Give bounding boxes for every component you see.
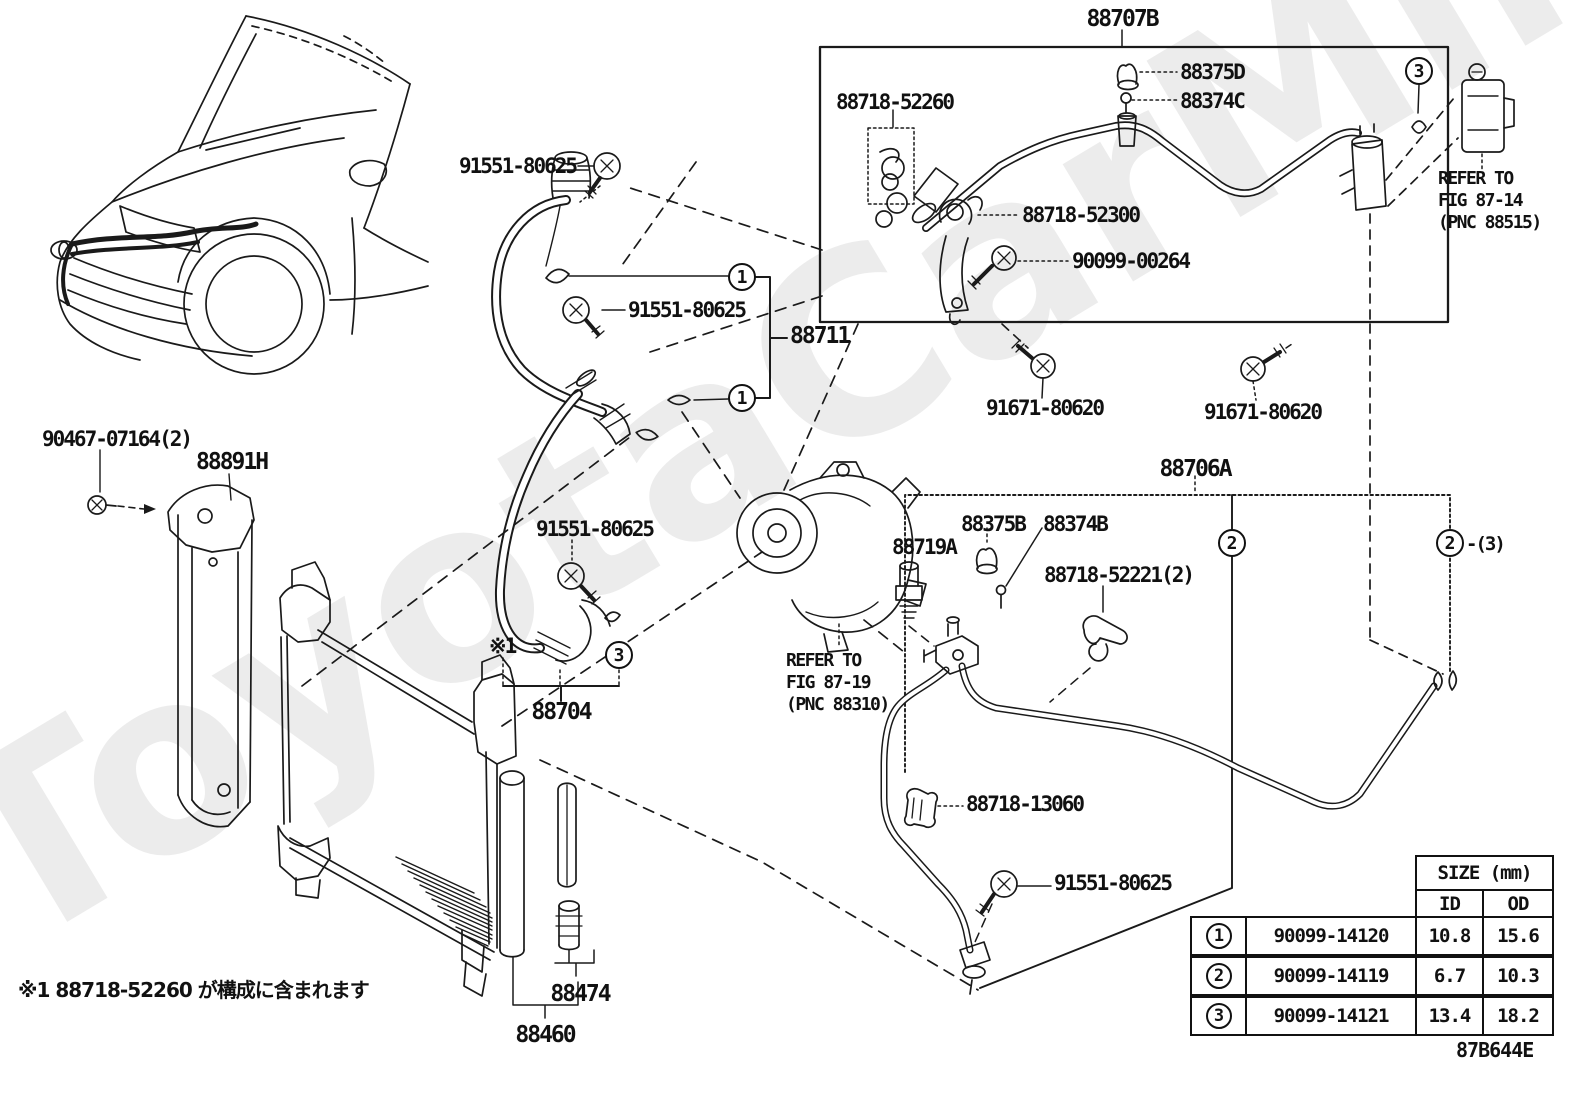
table-cell: 18.2 <box>1482 996 1554 1036</box>
table-cell-mark: 2 <box>1190 956 1247 996</box>
refer-note-line: FIG 87-14 <box>1438 190 1541 212</box>
size-table: SIZE (mm) ID OD 190099-1412010.815.62900… <box>1190 855 1554 1037</box>
table-cell: 15.6 <box>1482 916 1554 956</box>
table-cell-mark: 1 <box>1190 916 1247 956</box>
table-cell: 10.8 <box>1415 916 1484 956</box>
part-label-88719a: 88719A <box>892 537 956 558</box>
callout-circle-3: 3 <box>1405 57 1433 85</box>
callout-circle-2: 2 <box>1218 529 1246 557</box>
refer-note-line: (PNC 88310) <box>786 694 889 716</box>
callout-suffix: -(3) <box>1466 533 1504 555</box>
refer-note-2: REFER TOFIG 87-19(PNC 88310) <box>786 650 889 716</box>
part-label-8871852260: 88718-52260 <box>836 92 953 113</box>
part-label-88460: 88460 <box>515 1024 574 1047</box>
part-label-90467071642: 90467-07164(2) <box>42 429 191 450</box>
table-cell: 90099-14119 <box>1245 956 1417 996</box>
part-label-9155180625: 91551-80625 <box>459 156 576 177</box>
part-label-9167180620: 91671-80620 <box>1204 402 1321 423</box>
table-cell: 90099-14121 <box>1245 996 1417 1036</box>
refer-note-line: (PNC 88515) <box>1438 212 1541 234</box>
size-table-title: SIZE (mm) <box>1415 855 1554 891</box>
size-table-col-od: OD <box>1482 889 1554 918</box>
table-cell: 10.3 <box>1482 956 1554 996</box>
part-label-9155180625: 91551-80625 <box>628 300 745 321</box>
refer-note-line: REFER TO <box>1438 168 1541 190</box>
callout-circle-1: 1 <box>728 263 756 291</box>
diagram-code: 87B644E <box>1456 1038 1533 1062</box>
table-cell-mark: 3 <box>1190 996 1247 1036</box>
part-label-8871813060: 88718-13060 <box>966 794 1083 815</box>
table-row-badge: 2 <box>1206 963 1232 989</box>
table-row-badge: 3 <box>1206 1003 1232 1029</box>
part-label-9167180620: 91671-80620 <box>986 398 1103 419</box>
part-label-88707b: 88707B <box>1086 8 1157 31</box>
part-label-88711: 88711 <box>790 325 849 348</box>
part-label-88891h: 88891H <box>196 451 267 474</box>
table-cell: 90099-14120 <box>1245 916 1417 956</box>
part-label-88374c: 88374C <box>1180 91 1244 112</box>
part-label-9155180625: 91551-80625 <box>1054 873 1171 894</box>
part-label-8871852300: 88718-52300 <box>1022 205 1139 226</box>
part-label-88375d: 88375D <box>1180 62 1244 83</box>
part-label-88704: 88704 <box>531 701 590 724</box>
part-label-9155180625: 91551-80625 <box>536 519 653 540</box>
refer-note-line: REFER TO <box>786 650 889 672</box>
parts-diagram-page: ToyotaCarMine.ru <box>0 0 1592 1099</box>
part-label-88706a: 88706A <box>1159 458 1230 481</box>
callout-circle-1: 1 <box>728 384 756 412</box>
refer-note-1: REFER TOFIG 87-14(PNC 88515) <box>1438 168 1541 234</box>
table-cell: 6.7 <box>1415 956 1484 996</box>
table-cell: 13.4 <box>1415 996 1484 1036</box>
table-row-badge: 1 <box>1206 923 1232 949</box>
callout-circle-2: 2 <box>1436 529 1464 557</box>
labels-overlay: ※1 88718-52260 が構成に含まれます 87B644E SIZE (m… <box>0 0 1592 1099</box>
footnote: ※1 88718-52260 が構成に含まれます <box>18 974 369 1003</box>
part-label-88718522212: 88718-52221(2) <box>1044 565 1193 586</box>
callout-circle-3: 3 <box>605 641 633 669</box>
part-label-9009900264: 90099-00264 <box>1072 251 1189 272</box>
part-label-1: ※1 <box>489 636 515 657</box>
part-label-88374b: 88374B <box>1043 514 1107 535</box>
part-label-88474: 88474 <box>550 983 609 1006</box>
size-table-col-id: ID <box>1415 889 1484 918</box>
refer-note-line: FIG 87-19 <box>786 672 889 694</box>
part-label-88375b: 88375B <box>961 514 1025 535</box>
